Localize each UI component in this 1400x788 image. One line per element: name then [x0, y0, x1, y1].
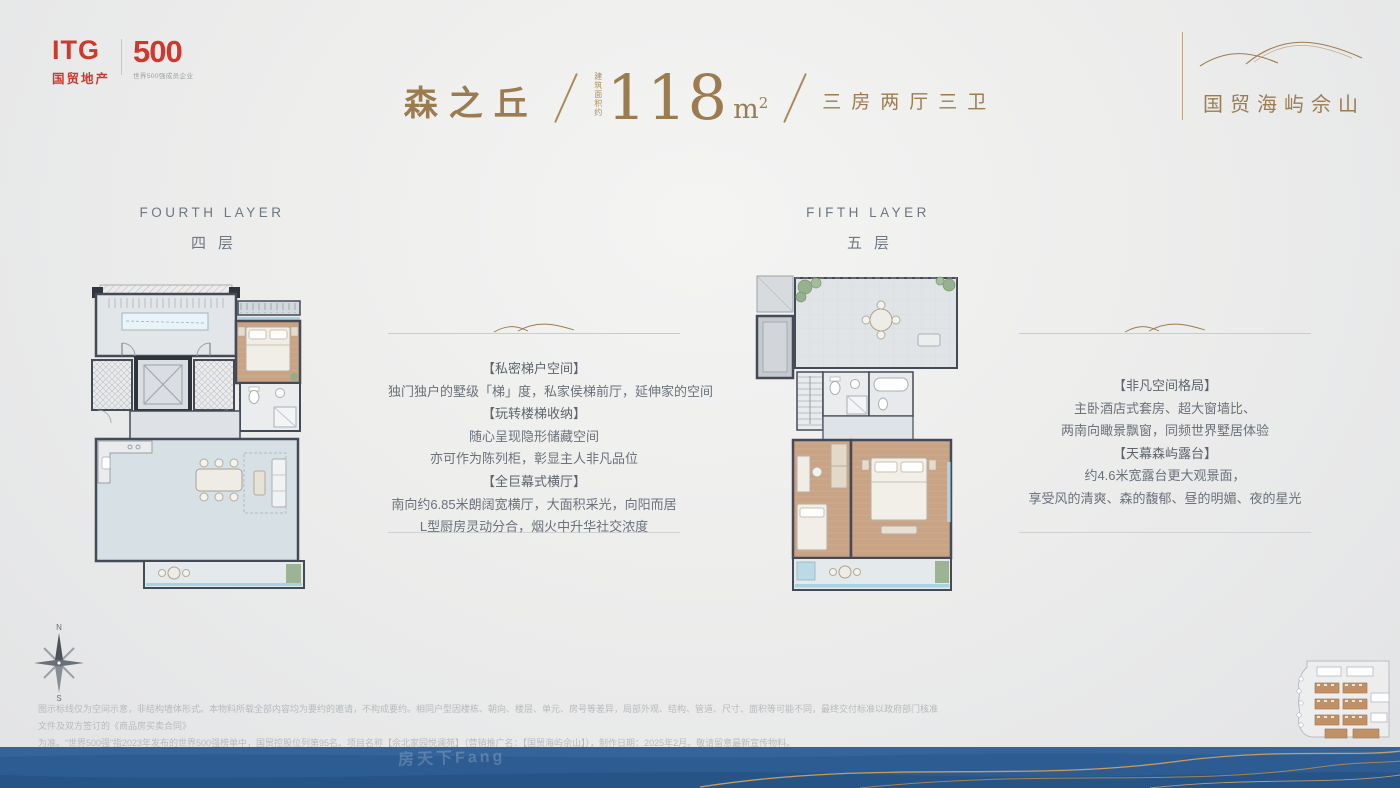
layer-en-label: FIFTH LAYER: [743, 205, 993, 220]
project-name: 国贸海屿佘山: [1184, 88, 1384, 117]
area-group: 建筑面积约 118 m2: [593, 69, 769, 126]
layer-en-label: FOURTH LAYER: [87, 205, 337, 220]
feature-title: 【天幕森屿露台】: [1019, 443, 1311, 466]
area-unit-sup: 2: [759, 94, 769, 112]
feature-title: 【全巨幕式横厅】: [388, 471, 680, 494]
feature-column-fifth: 【非凡空间格局】 主卧酒店式套房、超大窗墙比、 两南向瞰景飘窗，同频世界墅居体验…: [1019, 333, 1311, 533]
rooms-label: 三房两厅三卫: [822, 83, 996, 114]
feature-line: 随心呈现隐形储藏空间: [388, 426, 680, 449]
mountain-lines-icon: [1194, 26, 1374, 74]
area-unit-m: m: [733, 94, 759, 125]
slash-divider-icon: [783, 73, 807, 123]
feature-line: 南向约6.85米朗阔宽横厅，大面积采光，向阳而居: [388, 494, 680, 517]
layer-cn-label: 五层: [743, 232, 993, 253]
feature-line: 独门独户的墅级「梯」度，私家侯梯前厅，延伸家的空间: [388, 381, 680, 404]
disclaimer-line-1: 图示标线仅为空间示意，非结构墙体形式。本物料所载全部内容均为要约的邀请，不构成要…: [38, 701, 943, 735]
compass-icon: N S: [31, 620, 87, 702]
disclaimer: 图示标线仅为空间示意，非结构墙体形式。本物料所载全部内容均为要约的邀请，不构成要…: [38, 701, 943, 752]
feature-line: 亦可作为陈列柜，彰显主人非凡品位: [388, 448, 680, 471]
area-prefix-label: 建筑面积约: [593, 72, 604, 127]
divider-mountain-icon: [1119, 319, 1211, 338]
logo-vertical-divider: [1182, 32, 1183, 120]
floorplan-fourth-layer: [88, 283, 330, 593]
siteplan-keymap: [1283, 655, 1397, 745]
poster-page: ITG 国贸地产 500 世界500强成员企业 森之丘 建筑面积约 118 m2…: [0, 0, 1400, 788]
unit-title: 森之丘: [404, 72, 539, 125]
feature-line: L型厨房灵动分合，烟火中升华社交浓度: [388, 516, 680, 539]
slash-divider-icon: [554, 73, 578, 123]
compass-n-label: N: [56, 623, 62, 632]
feature-line: 约4.6米宽露台更大观景面，: [1019, 465, 1311, 488]
floorplan-fifth-layer: [753, 272, 965, 597]
layer-heading-fifth: FIFTH LAYER 五层: [743, 205, 993, 253]
wave-footer: [0, 747, 1400, 788]
feature-line: 主卧酒店式套房、超大窗墙比、: [1019, 398, 1311, 421]
area-unit-label: m2: [733, 96, 768, 127]
area-value: 118: [607, 69, 728, 126]
feature-line: 两南向瞰景飘窗，同频世界墅居体验: [1019, 420, 1311, 443]
feature-line: 享受风的清爽、森的馥郁、昼的明媚、夜的星光: [1019, 488, 1311, 511]
feature-title: 【玩转楼梯收纳】: [388, 403, 680, 426]
project-logo: 国贸海屿佘山: [1184, 26, 1384, 117]
divider-mountain-icon: [488, 319, 580, 338]
feature-title: 【非凡空间格局】: [1019, 375, 1311, 398]
layer-cn-label: 四层: [87, 232, 337, 253]
feature-title: 【私密梯户空间】: [388, 358, 680, 381]
feature-column-fourth: 【私密梯户空间】 独门独户的墅级「梯」度，私家侯梯前厅，延伸家的空间 【玩转楼梯…: [388, 333, 680, 533]
layer-heading-fourth: FOURTH LAYER 四层: [87, 205, 337, 253]
